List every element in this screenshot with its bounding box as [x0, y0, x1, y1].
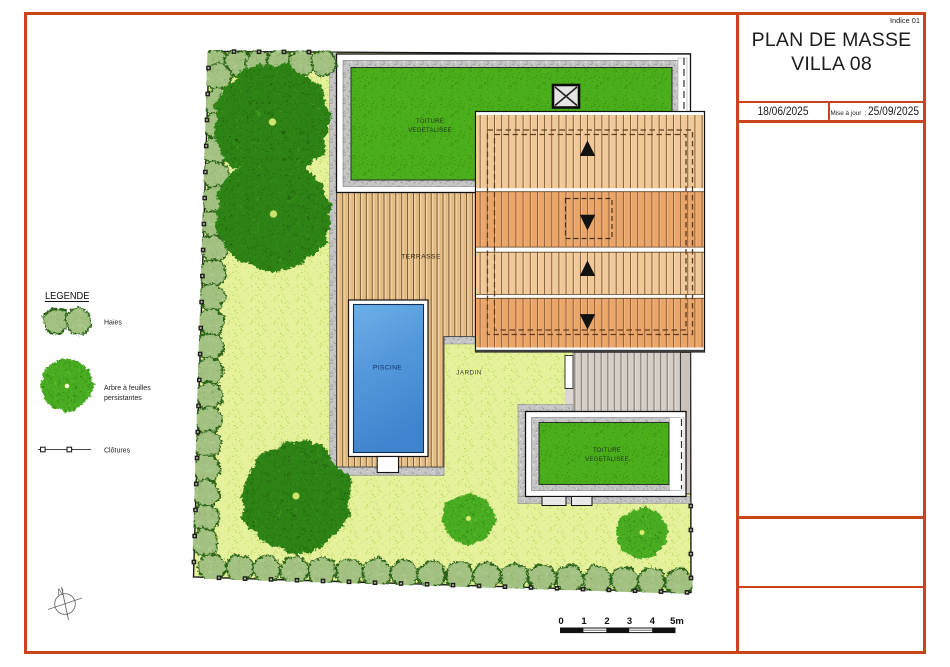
svg-text:LEGENDE: LEGENDE — [45, 290, 90, 302]
svg-text:JARDIN: JARDIN — [456, 370, 481, 377]
svg-text:PISCINE: PISCINE — [373, 365, 402, 372]
svg-text:5m: 5m — [670, 616, 684, 627]
svg-text:TOITURE: TOITURE — [416, 118, 444, 125]
svg-text:persistantes: persistantes — [104, 395, 142, 402]
svg-text:4: 4 — [650, 616, 656, 627]
svg-text:0: 0 — [558, 616, 563, 627]
svg-text:1: 1 — [581, 616, 587, 627]
svg-text:2: 2 — [604, 616, 609, 627]
svg-text:Clôtures: Clôtures — [104, 448, 131, 455]
svg-text:VEGETALISEE: VEGETALISEE — [408, 127, 452, 134]
svg-text:Arbre à feuilles: Arbre à feuilles — [104, 385, 151, 392]
svg-text:VEGETALISEE: VEGETALISEE — [585, 456, 629, 463]
svg-text:N: N — [58, 587, 64, 597]
svg-text:Haies: Haies — [104, 320, 122, 327]
svg-text:3: 3 — [627, 616, 632, 627]
svg-text:TERRASSE: TERRASSE — [401, 254, 441, 261]
svg-text:TOITURE: TOITURE — [593, 447, 621, 454]
